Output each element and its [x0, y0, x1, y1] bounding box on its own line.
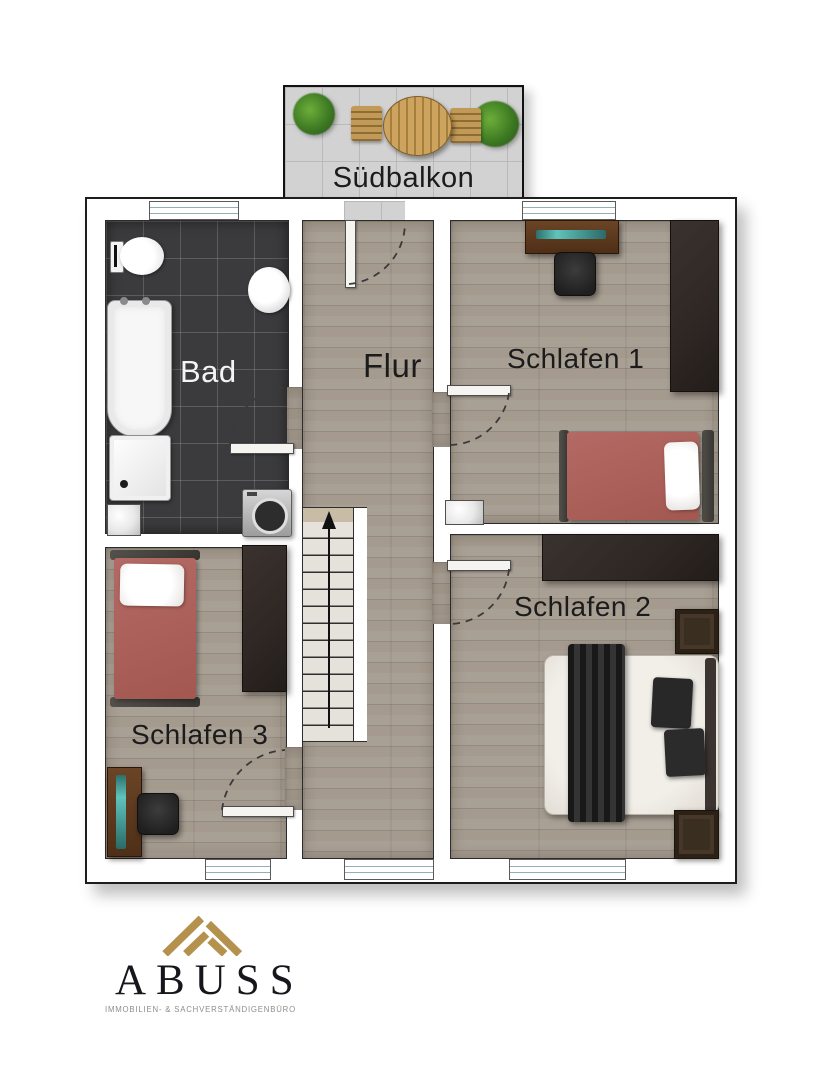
door-leaf-bad: [230, 443, 294, 454]
door-opening-schlafen1: [432, 392, 450, 447]
company-name: ABUSS: [105, 956, 295, 1005]
company-tagline: IMMOBILIEN- & SACHVERSTÄNDIGENBÜRO: [105, 1005, 295, 1014]
door-leaf-schlafen3: [222, 806, 294, 817]
balcony-chair-icon: [351, 106, 382, 141]
wardrobe-icon: [670, 220, 719, 392]
window-schlafen3: [205, 859, 271, 880]
pillow-dark-icon: [651, 677, 694, 729]
desk-icon: [525, 220, 619, 254]
wardrobe-icon: [242, 545, 287, 692]
sink-icon: [248, 267, 290, 313]
single-bed-icon: [110, 550, 200, 707]
roof-logo-icon: [153, 912, 248, 956]
door-leaf-balcony: [345, 220, 356, 288]
door-leaf-schlafen1: [447, 385, 511, 396]
plant-icon: [293, 93, 335, 135]
side-table-icon: [674, 810, 719, 859]
washing-machine-icon: [242, 489, 292, 537]
bathtub-icon: [107, 300, 172, 437]
stair-treads: [303, 522, 353, 741]
office-chair-icon: [554, 252, 596, 296]
stair-landing: [303, 508, 353, 523]
round-table-icon: [383, 96, 452, 156]
room-label-schlafen2: Schlafen 2: [514, 591, 651, 623]
room-label-flur: Flur: [363, 347, 422, 385]
window-flur: [344, 859, 434, 880]
company-logo: ABUSS IMMOBILIEN- & SACHVERSTÄNDIGENBÜRO: [105, 912, 295, 1012]
window-schlafen2: [509, 859, 626, 880]
window-schlafen1: [522, 201, 616, 220]
room-label-bad: Bad: [180, 354, 237, 390]
wall-niche: [107, 504, 141, 536]
room-label-schlafen1: Schlafen 1: [507, 343, 644, 375]
wall-niche: [445, 500, 484, 525]
floor-plan-canvas: Südbalkon: [0, 0, 839, 1080]
balcony-label: Südbalkon: [285, 162, 522, 195]
balcony-area: Südbalkon: [283, 85, 524, 201]
balcony-chair-icon: [450, 108, 481, 143]
door-leaf-schlafen2: [447, 560, 511, 571]
side-table-icon: [675, 609, 719, 654]
window-bad: [149, 201, 239, 220]
shower-tray-icon: [109, 435, 171, 501]
door-opening-schlafen2: [432, 562, 450, 624]
pillow-dark-icon: [664, 728, 706, 777]
blanket-icon: [568, 644, 625, 822]
floor-plan-outline: Bad Flur Schlafen 1 Schlafen 2 Schlafen …: [85, 197, 737, 884]
single-bed-icon: [559, 430, 714, 522]
room-label-schlafen3: Schlafen 3: [131, 719, 268, 751]
wardrobe-icon: [542, 534, 719, 581]
stair-rail: [353, 508, 367, 741]
office-chair-icon: [137, 793, 179, 835]
toilet-bowl-icon: [120, 237, 164, 275]
door-opening-balcony: [344, 201, 405, 220]
door-opening-schlafen3: [285, 747, 302, 810]
door-opening-bad: [287, 387, 302, 449]
staircase: [302, 507, 367, 742]
